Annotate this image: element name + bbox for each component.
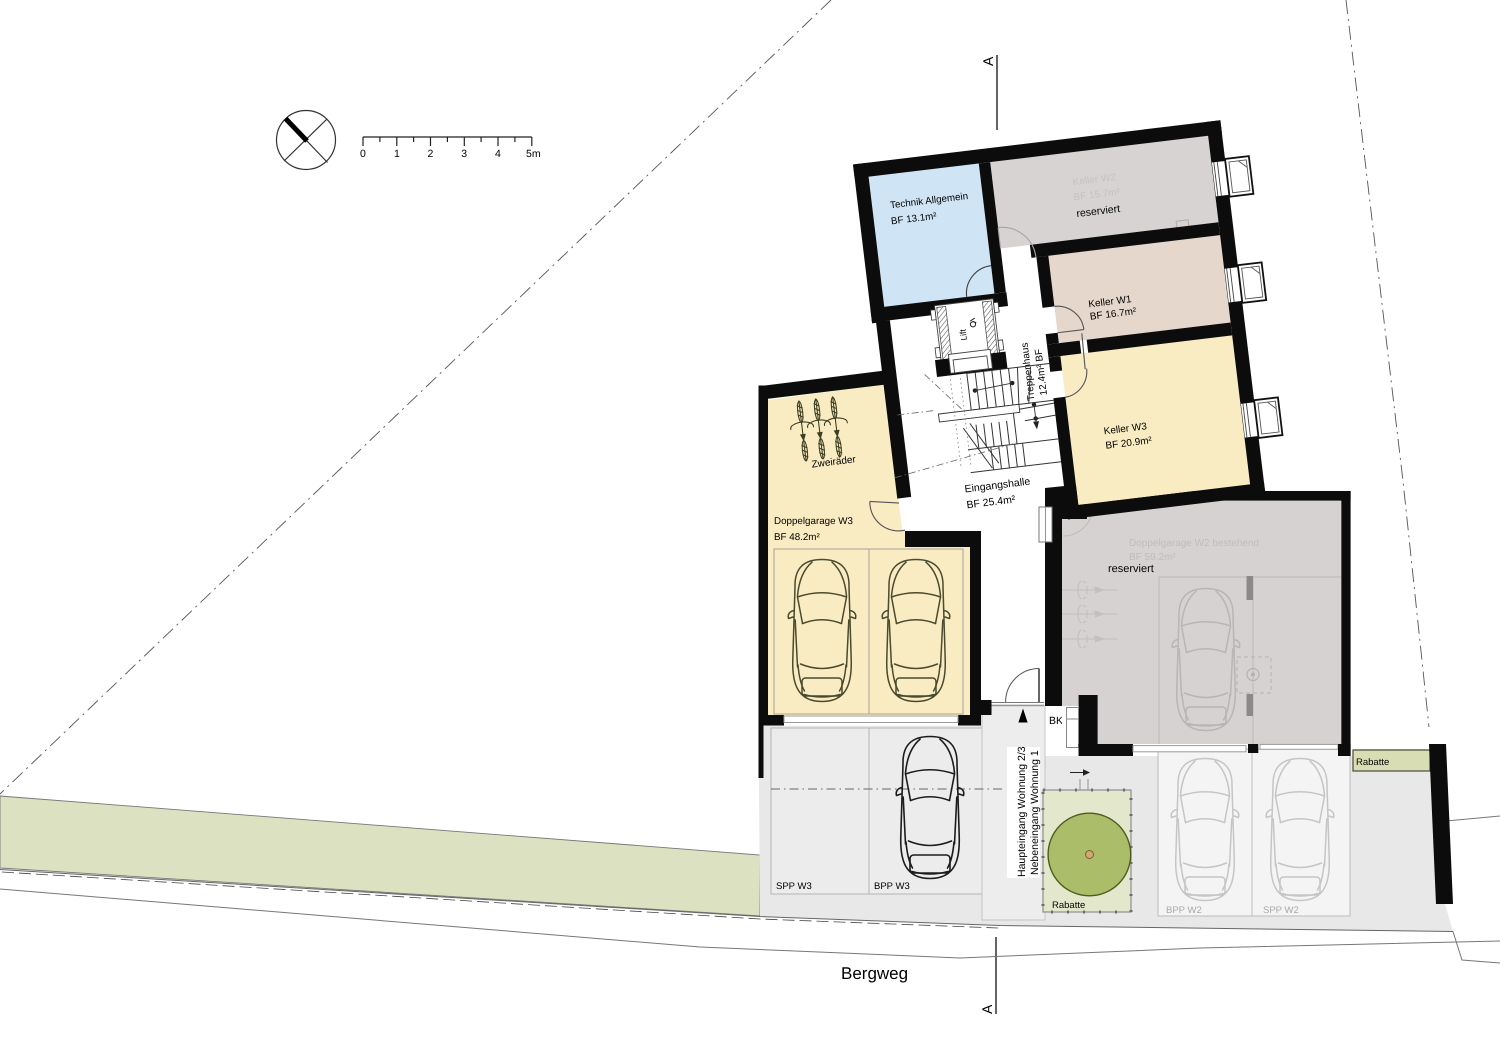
svg-text:A: A xyxy=(979,1004,995,1014)
svg-text:3: 3 xyxy=(461,148,467,160)
svg-text:SPP W3: SPP W3 xyxy=(776,881,812,892)
svg-text:1: 1 xyxy=(394,148,400,160)
svg-text:BF 59.2m²: BF 59.2m² xyxy=(1129,552,1176,563)
svg-text:Doppelgarage W2 bestehend: Doppelgarage W2 bestehend xyxy=(1129,538,1259,549)
svg-text:reserviert: reserviert xyxy=(1108,563,1154,575)
svg-text:Bergweg: Bergweg xyxy=(841,964,908,983)
svg-text:Doppelgarage W3: Doppelgarage W3 xyxy=(774,516,854,527)
svg-text:4: 4 xyxy=(495,148,501,160)
svg-text:5m: 5m xyxy=(526,148,541,160)
svg-text:BPP W3: BPP W3 xyxy=(874,881,910,892)
svg-text:SPP W2: SPP W2 xyxy=(1263,905,1299,916)
svg-text:0: 0 xyxy=(360,148,366,160)
svg-text:BF 48.2m²: BF 48.2m² xyxy=(774,532,820,543)
svg-text:Rabatte: Rabatte xyxy=(1356,757,1389,768)
svg-text:Lift: Lift xyxy=(957,328,968,341)
svg-text:Haupteingang Wohnung 2/3: Haupteingang Wohnung 2/3 xyxy=(1016,746,1028,877)
svg-text:2: 2 xyxy=(428,148,434,160)
svg-text:BK: BK xyxy=(1049,715,1063,727)
svg-text:Rabatte: Rabatte xyxy=(1052,900,1085,911)
svg-text:BPP W2: BPP W2 xyxy=(1166,905,1202,916)
svg-text:A: A xyxy=(980,56,996,66)
svg-text:Nebeneingang Wohnung 1: Nebeneingang Wohnung 1 xyxy=(1029,750,1041,875)
